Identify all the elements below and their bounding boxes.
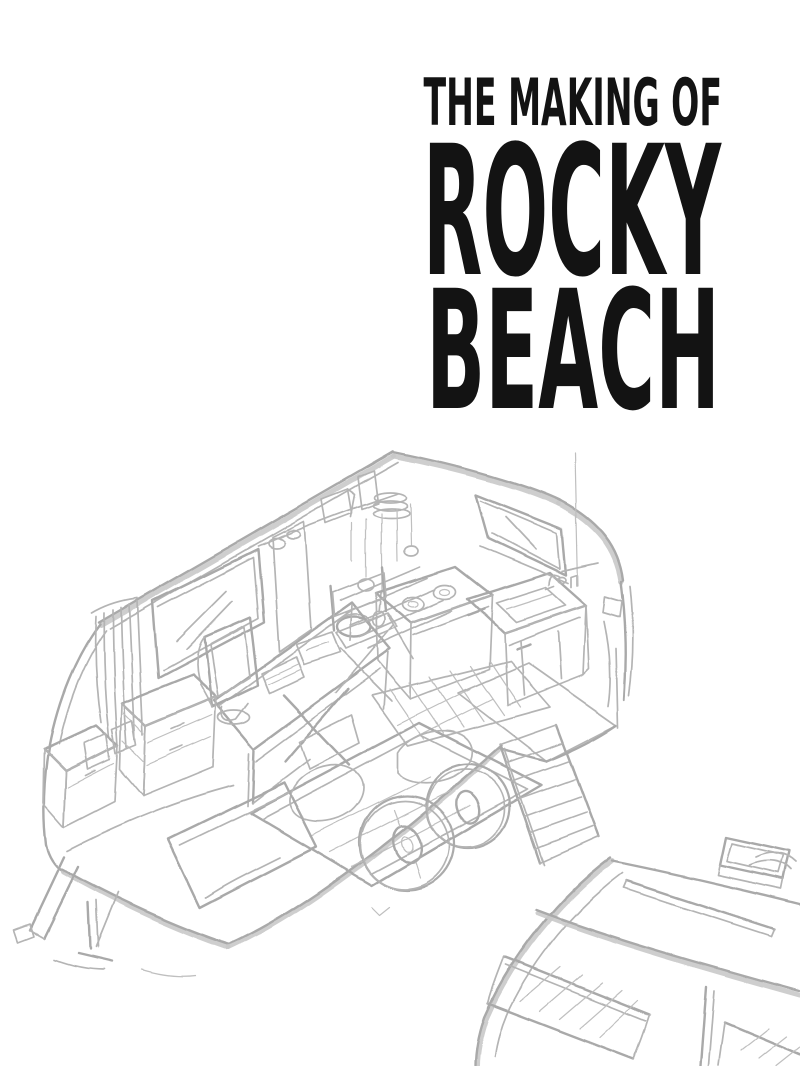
title-block: THE MAKING OF ROCKY BEACH [423,66,722,448]
page-artwork: THE MAKING OF ROCKY BEACH [0,0,800,1066]
title-line-beach: BEACH [426,256,720,448]
kitchen-window [476,495,568,583]
secondary-trailer-sketch [475,837,800,1066]
sink [468,573,589,705]
book-page: THE MAKING OF ROCKY BEACH [0,0,800,1066]
roof-vent [718,837,797,889]
drawers [43,675,216,827]
hatched-windows [488,957,800,1066]
main-trailer-sketch [14,452,633,976]
entry-ramp [500,725,598,865]
folding-chair [284,689,360,769]
doorway [458,631,618,761]
bed [168,723,542,907]
